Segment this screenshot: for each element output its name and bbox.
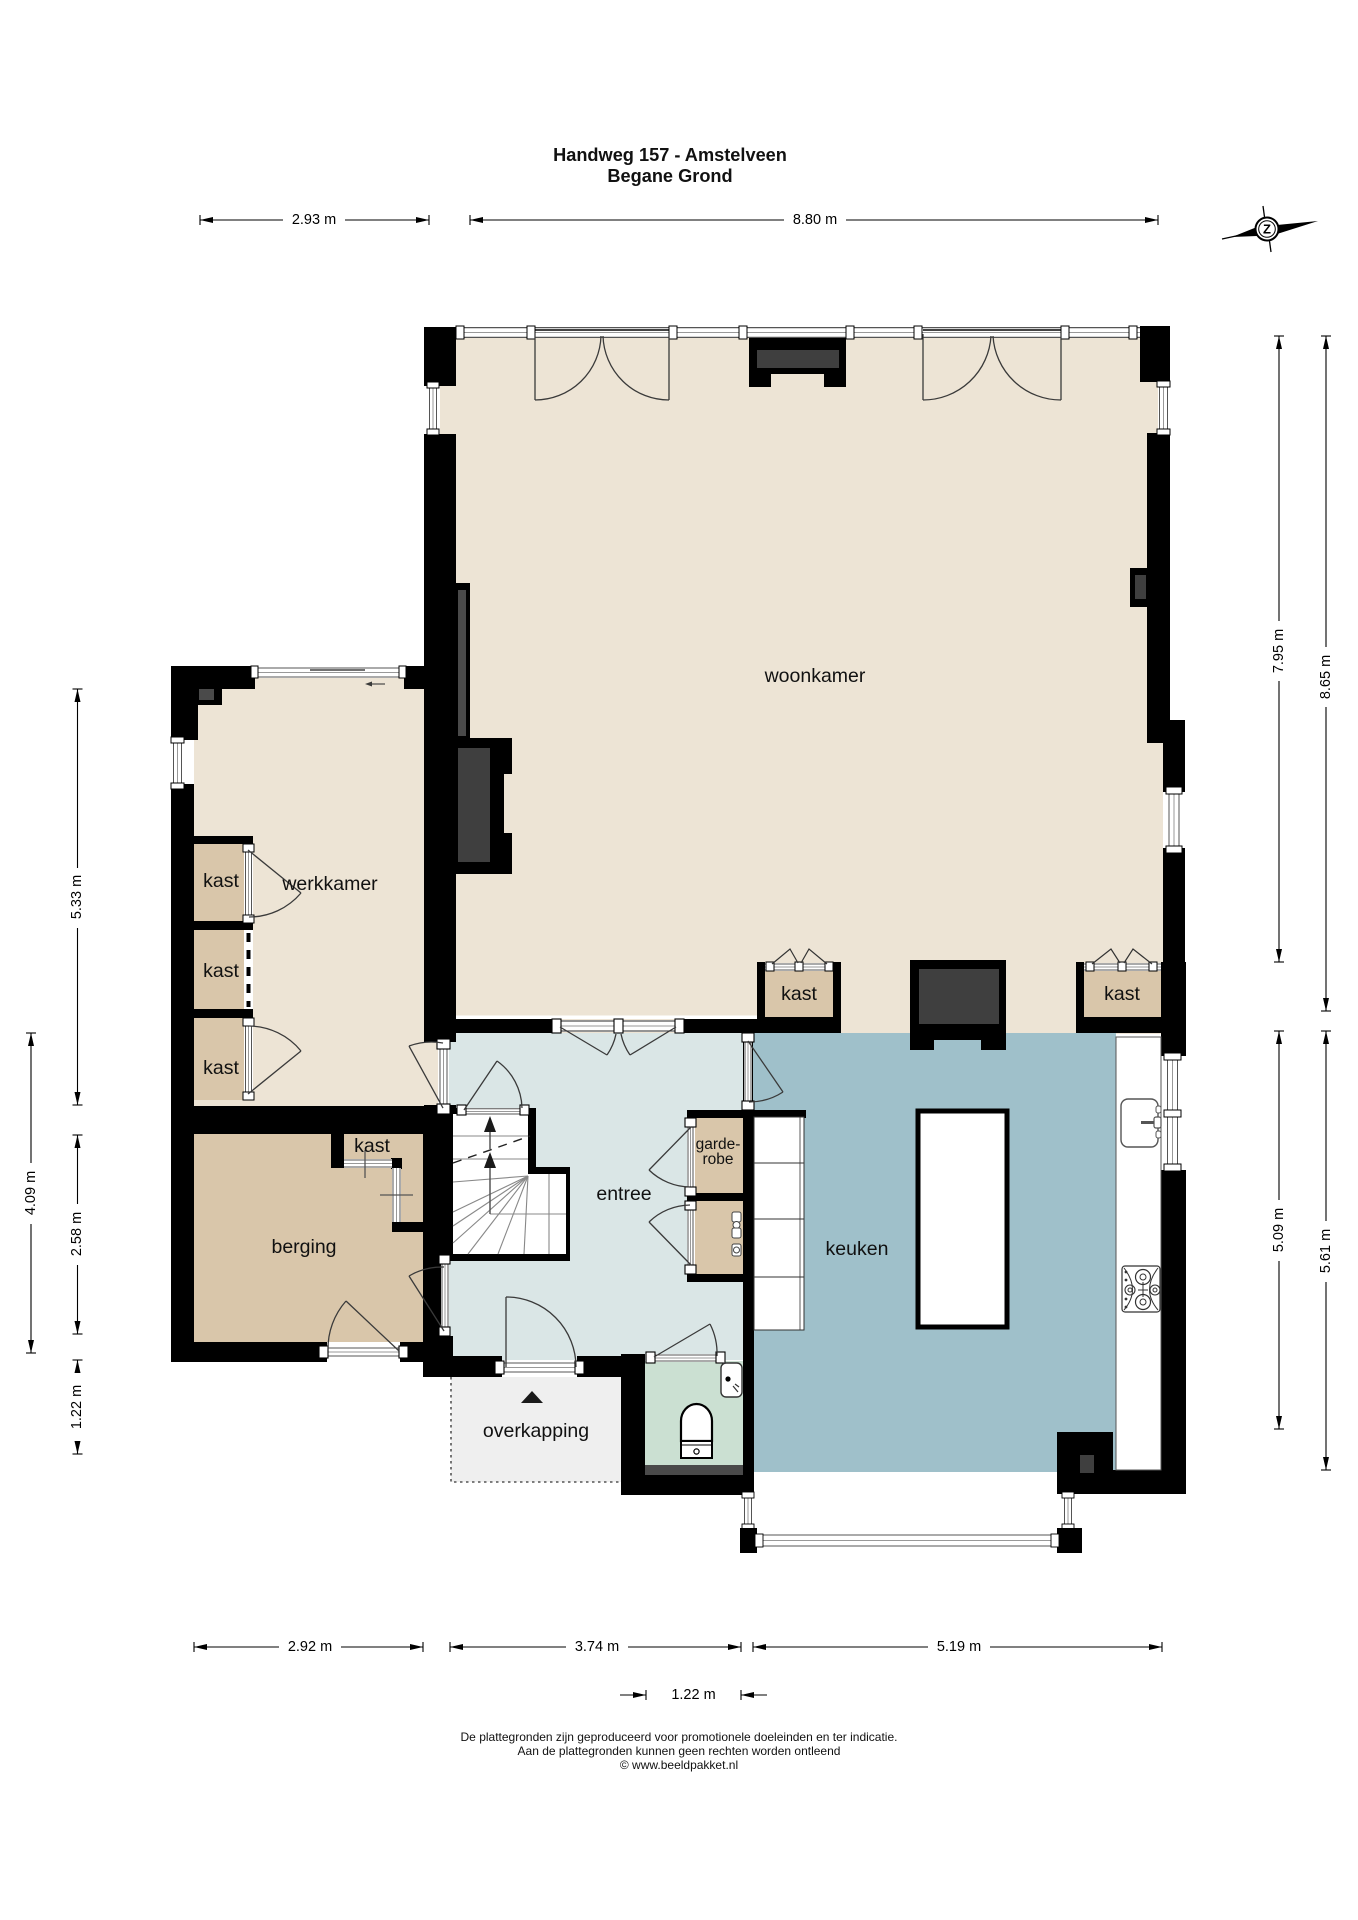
svg-text:1.22 m: 1.22 m bbox=[671, 1687, 715, 1703]
svg-text:5.61 m: 5.61 m bbox=[1318, 1229, 1334, 1273]
svg-text:Z: Z bbox=[1263, 222, 1271, 237]
svg-text:kast: kast bbox=[354, 1135, 390, 1157]
svg-text:berging: berging bbox=[271, 1236, 336, 1258]
svg-text:8.80 m: 8.80 m bbox=[793, 212, 837, 228]
svg-text:2.58 m: 2.58 m bbox=[69, 1212, 85, 1256]
svg-text:© www.beeldpakket.nl: © www.beeldpakket.nl bbox=[620, 1758, 738, 1772]
svg-text:kast: kast bbox=[203, 960, 239, 982]
svg-text:Begane Grond: Begane Grond bbox=[607, 166, 732, 186]
svg-text:kast: kast bbox=[203, 870, 239, 892]
svg-text:Handweg 157 - Amstelveen: Handweg 157 - Amstelveen bbox=[553, 145, 787, 165]
svg-text:3.74 m: 3.74 m bbox=[575, 1639, 619, 1655]
svg-text:5.19 m: 5.19 m bbox=[937, 1639, 981, 1655]
svg-text:4.09 m: 4.09 m bbox=[23, 1171, 39, 1215]
svg-text:7.95 m: 7.95 m bbox=[1271, 629, 1287, 673]
svg-text:keuken: keuken bbox=[826, 1238, 889, 1260]
svg-text:8.65 m: 8.65 m bbox=[1318, 655, 1334, 699]
svg-text:De plattegronden zijn geproduc: De plattegronden zijn geproduceerd voor … bbox=[461, 1730, 898, 1744]
svg-text:Aan de plattegronden kunnen ge: Aan de plattegronden kunnen geen rechten… bbox=[518, 1744, 841, 1758]
svg-text:entree: entree bbox=[596, 1183, 651, 1205]
svg-text:2.92 m: 2.92 m bbox=[288, 1639, 332, 1655]
svg-text:woonkamer: woonkamer bbox=[764, 665, 866, 687]
svg-text:1.22 m: 1.22 m bbox=[69, 1385, 85, 1429]
svg-text:robe: robe bbox=[702, 1151, 733, 1168]
svg-text:5.33 m: 5.33 m bbox=[69, 875, 85, 919]
svg-text:kast: kast bbox=[1104, 983, 1140, 1005]
svg-text:5.09 m: 5.09 m bbox=[1271, 1208, 1287, 1252]
svg-text:kast: kast bbox=[781, 983, 817, 1005]
svg-text:2.93 m: 2.93 m bbox=[292, 212, 336, 228]
svg-text:kast: kast bbox=[203, 1057, 239, 1079]
svg-text:overkapping: overkapping bbox=[483, 1420, 589, 1442]
svg-text:werkkamer: werkkamer bbox=[281, 873, 378, 895]
